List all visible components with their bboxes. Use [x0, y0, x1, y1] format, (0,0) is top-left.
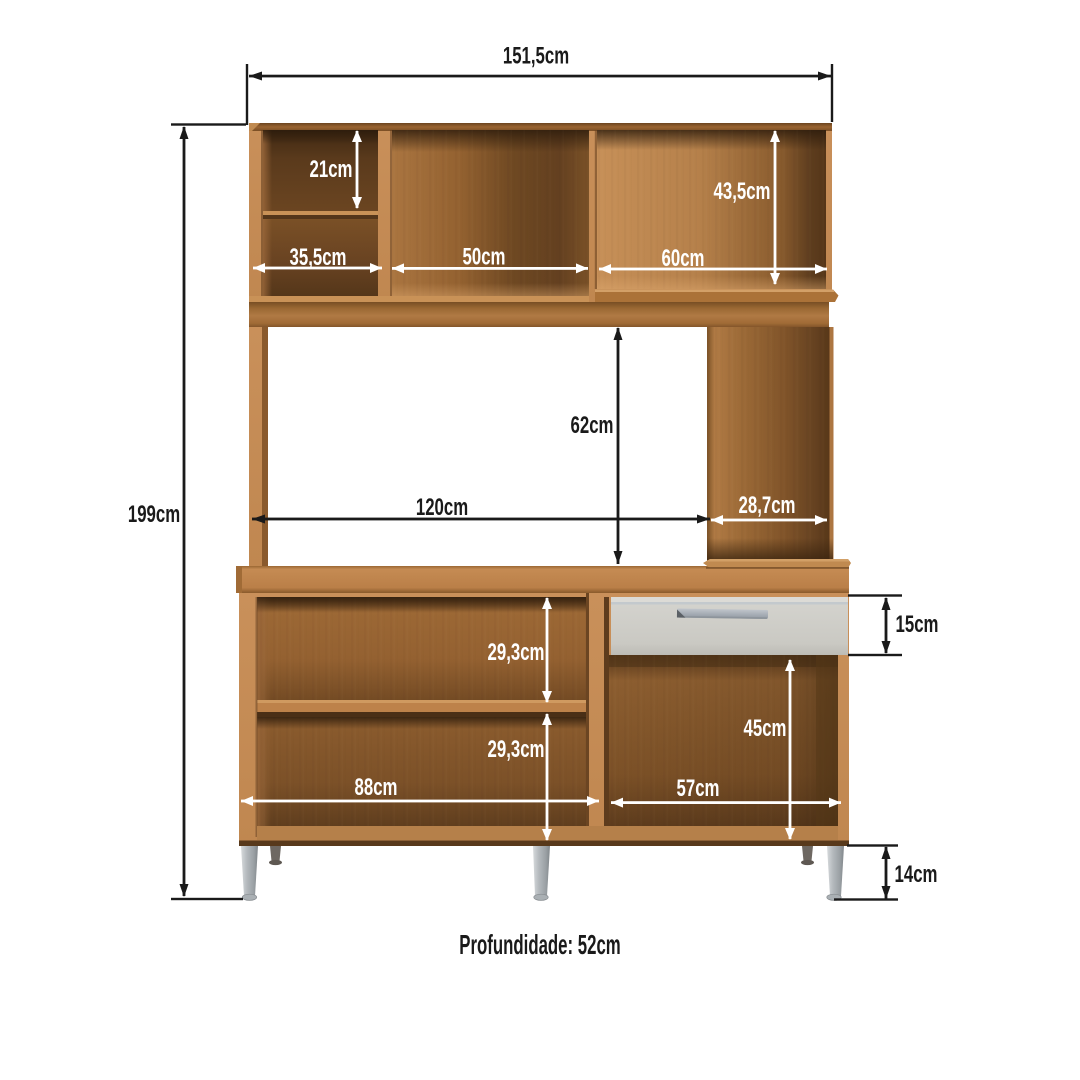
svg-text:28,7cm: 28,7cm	[739, 492, 796, 519]
svg-text:57cm: 57cm	[677, 775, 720, 802]
svg-text:199cm: 199cm	[128, 501, 180, 528]
svg-text:50cm: 50cm	[463, 244, 506, 271]
svg-text:60cm: 60cm	[662, 245, 705, 272]
svg-text:29,3cm: 29,3cm	[488, 639, 545, 666]
svg-text:Profundidade: 52cm: Profundidade: 52cm	[459, 929, 620, 961]
svg-text:151,5cm: 151,5cm	[503, 43, 569, 70]
svg-text:62cm: 62cm	[571, 412, 614, 439]
svg-text:15cm: 15cm	[896, 611, 939, 638]
svg-text:21cm: 21cm	[310, 156, 353, 183]
svg-text:120cm: 120cm	[416, 494, 468, 521]
svg-text:14cm: 14cm	[895, 861, 938, 888]
svg-text:45cm: 45cm	[744, 715, 787, 742]
svg-text:88cm: 88cm	[355, 774, 398, 801]
svg-text:35,5cm: 35,5cm	[290, 244, 347, 271]
svg-text:29,3cm: 29,3cm	[488, 736, 545, 763]
svg-text:43,5cm: 43,5cm	[714, 178, 771, 205]
